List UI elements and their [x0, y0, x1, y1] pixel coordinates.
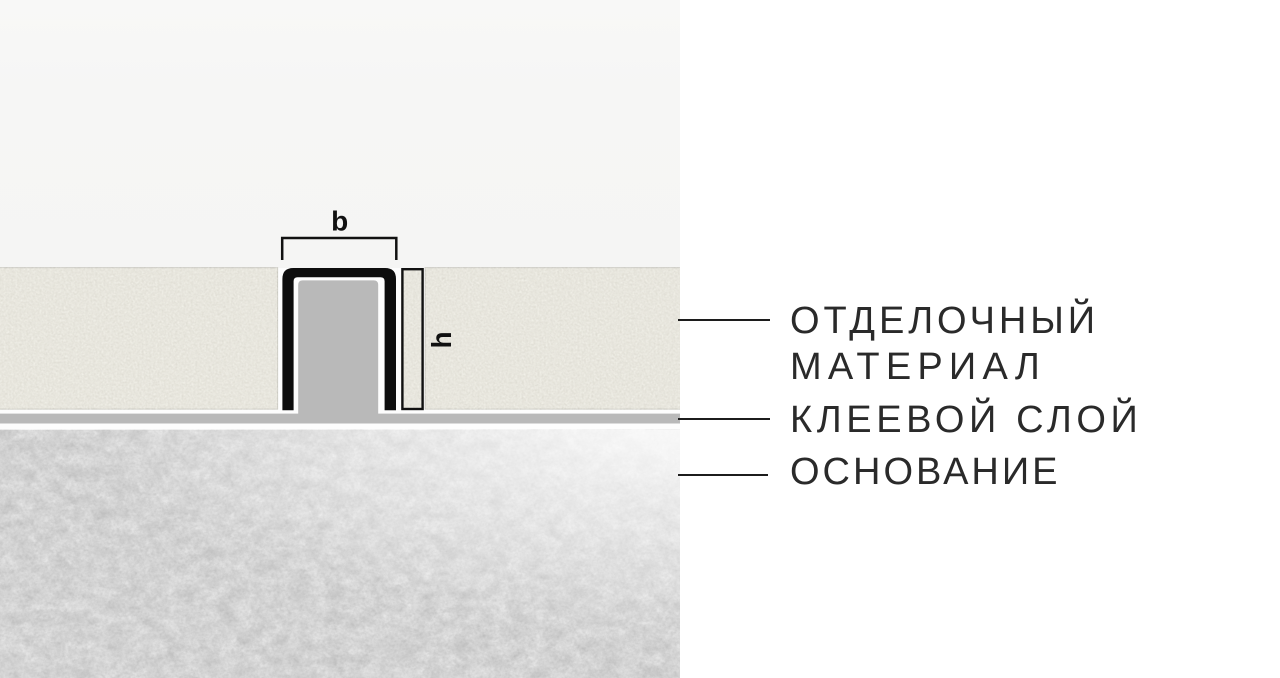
svg-text:b: b: [331, 206, 348, 237]
svg-text:h: h: [426, 331, 457, 348]
